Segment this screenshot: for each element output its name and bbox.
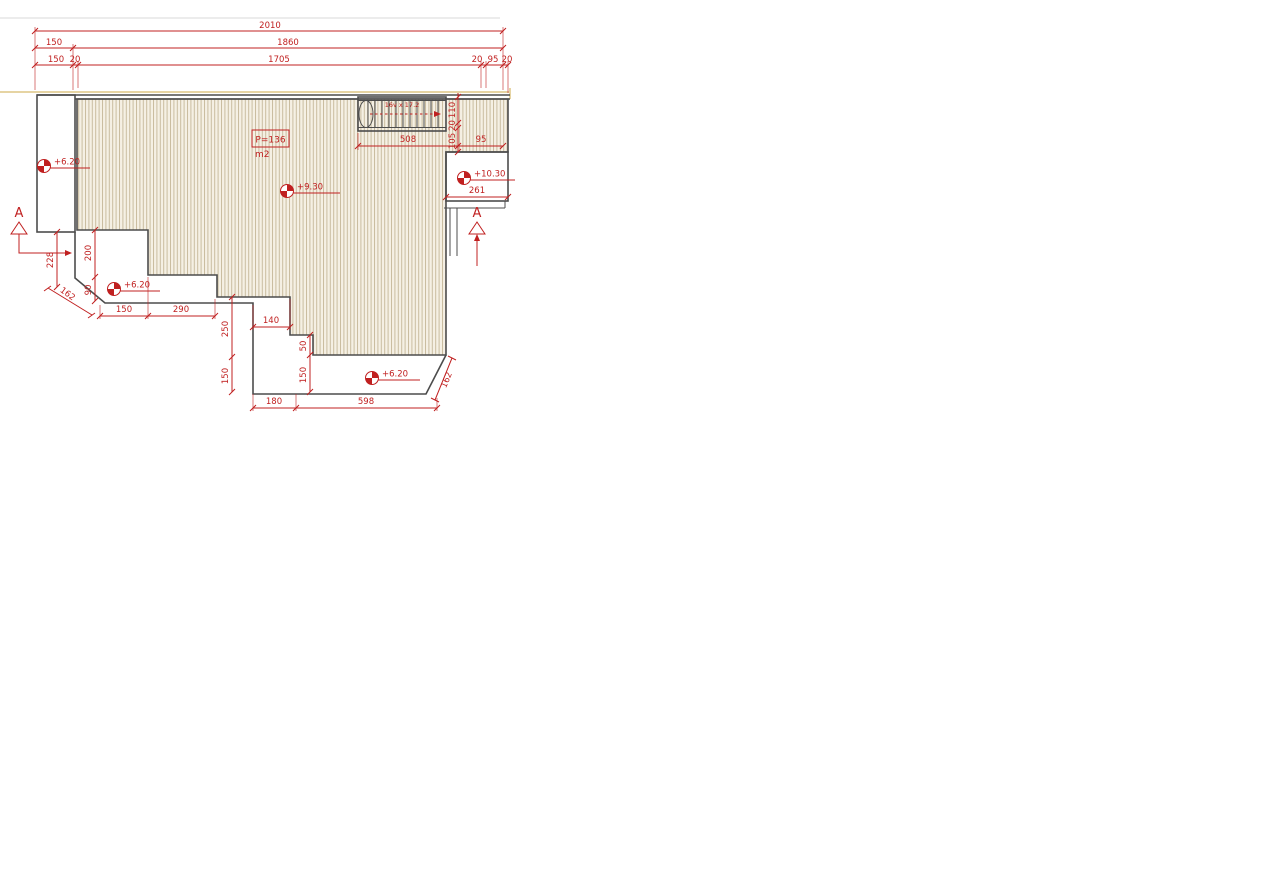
section-line-arrow — [65, 250, 72, 256]
level-marker-terrace-left: +6.20 — [108, 281, 161, 296]
dim-text: 20 — [448, 120, 458, 131]
area-unit: m2 — [255, 150, 270, 160]
dimension-low-chain: 50 150 — [299, 332, 313, 395]
level-marker-terrace-bottom: +6.20 — [366, 370, 421, 385]
dim-text: 162 — [439, 371, 455, 390]
dimension-left-chain: 200 90 — [84, 227, 98, 304]
dimension-bottom-left: 150 290 — [97, 305, 218, 319]
dim-text: 110 — [448, 102, 458, 118]
stair-label: 16v x 17.2 — [385, 101, 420, 109]
dim-text: 90 — [84, 285, 94, 296]
dim-text: 150 — [46, 38, 62, 48]
dim-text: 140 — [263, 316, 279, 326]
dimension-mid-chain: 250 150 — [221, 294, 235, 395]
dim-text: 162 — [58, 286, 77, 304]
dim-text: 261 — [469, 186, 485, 196]
level-marker-right-room: +10.30 — [458, 170, 516, 185]
section-marker-left: A — [11, 206, 72, 256]
dim-text: 228 — [46, 252, 56, 268]
level-text: +10.30 — [474, 170, 505, 180]
dimension-left-228: 228 — [46, 229, 60, 290]
dim-text: 250 — [221, 321, 231, 337]
deck-polygon — [77, 99, 508, 355]
dim-text: 150 — [48, 55, 64, 65]
section-marker-right: A — [469, 206, 485, 266]
deck-hatch-area — [77, 99, 508, 355]
dim-text: 105 — [448, 133, 458, 149]
dim-text: 180 — [266, 397, 282, 407]
dim-text: 1860 — [277, 38, 299, 48]
level-text: +6.20 — [54, 158, 80, 168]
dim-text: 508 — [400, 135, 416, 145]
section-line — [19, 234, 66, 253]
section-letter: A — [15, 206, 24, 221]
dimension-notch-140: 140 — [250, 316, 293, 330]
level-text: +6.20 — [382, 370, 408, 380]
dim-text: 20 — [70, 55, 81, 65]
level-text: +6.20 — [124, 281, 150, 291]
dimension-bottom: 180 598 — [250, 397, 440, 411]
dimension-row2: 150 1860 — [32, 38, 506, 51]
page: 16v x 17.2 2010 150 1860 150 20 1705 20 … — [0, 0, 1280, 876]
dim-text: 20 — [502, 55, 513, 65]
section-triangle-icon — [469, 222, 485, 234]
level-text: +9.30 — [297, 183, 323, 193]
dim-text: 200 — [84, 245, 94, 261]
dim-text: 150 — [299, 367, 309, 383]
dim-text: 290 — [173, 305, 189, 315]
section-line-arrow — [474, 234, 480, 241]
dim-text: 20 — [472, 55, 483, 65]
dimension-total: 2010 — [32, 21, 506, 34]
dimension-row3: 150 20 1705 20 95 20 — [32, 55, 512, 68]
dim-text: 150 — [221, 368, 231, 384]
dim-text: 150 — [116, 305, 132, 315]
section-triangle-icon — [11, 222, 27, 234]
dim-text: 95 — [488, 55, 499, 65]
dim-text: 1705 — [268, 55, 290, 65]
dim-text: 95 — [476, 135, 487, 145]
dim-text: 2010 — [259, 21, 281, 31]
dimension-room-width: 261 — [443, 186, 511, 200]
dim-text: 50 — [299, 341, 309, 352]
dim-text: 598 — [358, 397, 374, 407]
area-value: P=136 — [255, 136, 285, 146]
floor-plan-drawing: 16v x 17.2 2010 150 1860 150 20 1705 20 … — [0, 0, 1280, 876]
dimension-diagonal-right: 162 — [431, 356, 456, 402]
section-letter: A — [473, 206, 482, 221]
